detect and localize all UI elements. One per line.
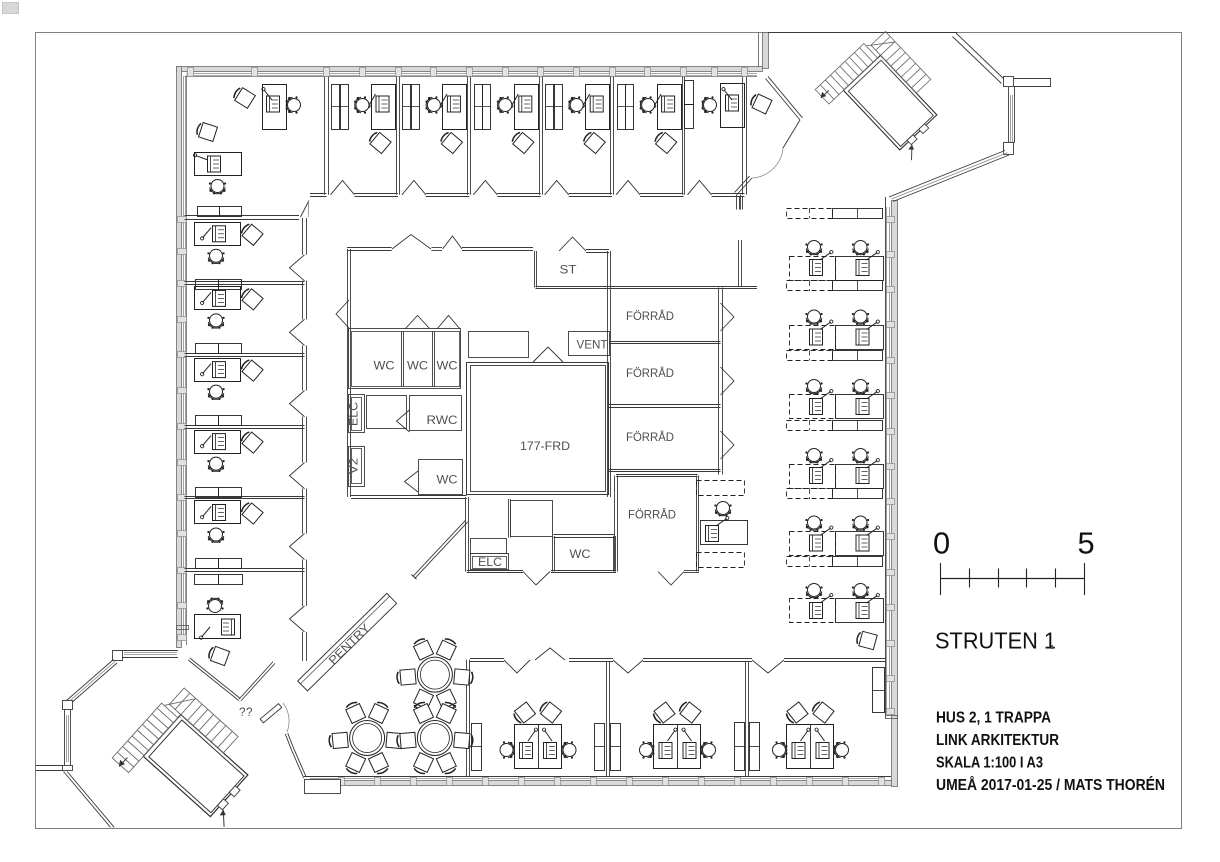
- svg-text:PENTRY: PENTRY: [326, 621, 373, 667]
- svg-text:177-FRD: 177-FRD: [520, 439, 570, 453]
- svg-text:LINK ARKITEKTUR: LINK ARKITEKTUR: [936, 732, 1059, 749]
- svg-text:5: 5: [1078, 526, 1095, 561]
- svg-text:V2: V2: [349, 458, 361, 474]
- svg-text:WC: WC: [374, 359, 395, 373]
- svg-text:UMEÅ 2017-01-25 / MATS THORÉN: UMEÅ 2017-01-25 / MATS THORÉN: [936, 777, 1165, 794]
- svg-text:WC: WC: [437, 359, 458, 373]
- svg-text:ELC: ELC: [478, 555, 502, 569]
- svg-text:RWC: RWC: [427, 413, 458, 427]
- svg-text:ELC: ELC: [349, 402, 361, 426]
- svg-text:ST: ST: [560, 263, 578, 277]
- svg-text:FÖRRÅD: FÖRRÅD: [626, 365, 674, 380]
- svg-text:0: 0: [933, 526, 950, 561]
- svg-text:SKALA 1:100 I A3: SKALA 1:100 I A3: [936, 755, 1043, 772]
- svg-text:FÖRRÅD: FÖRRÅD: [626, 429, 674, 444]
- svg-text:WC: WC: [570, 547, 591, 561]
- svg-text:VENT: VENT: [577, 338, 609, 352]
- svg-text:STRUTEN 1: STRUTEN 1: [935, 628, 1056, 654]
- svg-text:HUS 2, 1 TRAPPA: HUS 2, 1 TRAPPA: [936, 710, 1051, 727]
- svg-text:WC: WC: [437, 473, 458, 487]
- svg-text:WC: WC: [407, 359, 428, 373]
- svg-text:FÖRRÅD: FÖRRÅD: [628, 507, 676, 522]
- svg-text:FÖRRÅD: FÖRRÅD: [626, 308, 674, 323]
- svg-text:??: ??: [239, 705, 253, 719]
